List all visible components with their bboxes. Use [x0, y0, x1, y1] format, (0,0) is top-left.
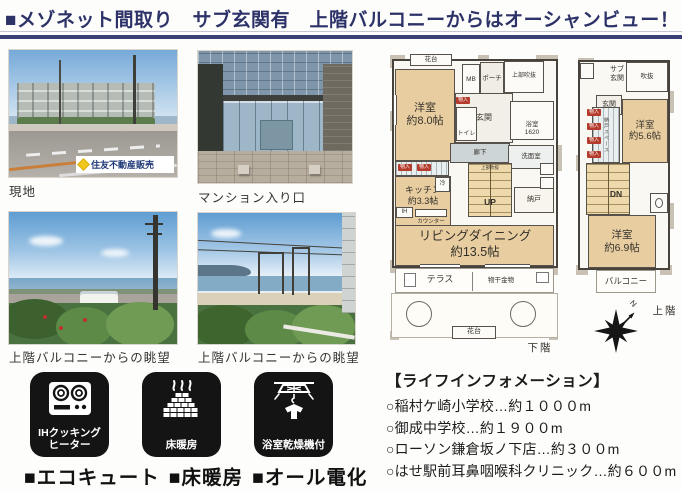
header-rule-thin — [0, 31, 682, 32]
floorplan-lower: 花台 洋室 約8.0帖 MB ポーチ 上部吹抜 玄関 物入 トイレ 浴室 162… — [390, 55, 562, 355]
living-label: リビングダイニング 約13.5帖 — [402, 229, 548, 260]
ih-stove: IH — [396, 207, 413, 218]
photo-site: 住友不動産販売 — [8, 49, 178, 178]
photo-balcony-view-2 — [197, 212, 356, 345]
stone-block — [238, 165, 249, 174]
fixture — [536, 272, 549, 283]
balcony: バルコニー — [596, 270, 656, 293]
room-bedroom56: 洋室 約5.6帖 — [622, 99, 668, 163]
room-void: 吹抜 — [626, 62, 668, 92]
laundry-pole-label: 物干金物 — [476, 277, 526, 285]
ih-cooking-icon — [46, 379, 94, 421]
flower — [43, 315, 47, 319]
terrace-divider — [472, 272, 473, 291]
room-hallway: 廊下 — [450, 143, 510, 163]
photo-caption-site: 現地 — [9, 181, 36, 200]
room-porch: ポーチ — [480, 62, 504, 95]
sidewalk — [9, 124, 177, 132]
fixture — [650, 193, 668, 213]
cloud — [29, 236, 63, 246]
room-storage: 納戸 — [514, 187, 554, 213]
life-information-item: ○はせ駅前耳鼻咽喉科クリニック…約６００m — [386, 461, 682, 483]
life-information-item: ○御成中学校…約１９００m — [386, 418, 682, 440]
feature-ih-cooking: IHクッキング ヒーター — [30, 372, 109, 457]
room-hanadai-top: 花台 — [410, 54, 452, 66]
stone-wall-right — [323, 64, 352, 151]
closet-space-label: 納戸スペース — [603, 117, 609, 153]
closet-tag: 物入 — [587, 137, 601, 144]
cloud — [211, 229, 241, 238]
closet-tag: 物入 — [587, 109, 601, 116]
feature-floor-heating: 床暖房 — [142, 372, 221, 457]
window — [393, 95, 397, 125]
room-mb: MB — [462, 64, 480, 95]
planter-circle — [406, 301, 432, 327]
agency-watermark-text: 住友不動産販売 — [91, 158, 154, 171]
terrace-area — [395, 268, 554, 293]
kitchen-counter — [415, 209, 447, 217]
agency-diamond-icon — [77, 158, 90, 171]
room-toilet: トイレ — [456, 107, 477, 141]
photo-caption-view1: 上階バルコニーからの眺望 — [9, 347, 171, 366]
flower — [59, 326, 63, 330]
meter-box — [580, 63, 594, 79]
photo-caption-view2: 上階バルコニーからの眺望 — [198, 347, 360, 366]
stairs-up — [468, 163, 512, 217]
room-bath: 浴室 1620 — [510, 101, 554, 140]
closet-tag: 物入 — [456, 97, 470, 104]
feature-label: 床暖房 — [142, 439, 221, 451]
closet-tag: 物入 — [417, 164, 431, 171]
life-information: 【ライフインフォメーション】 ○稲村ケ崎小学校…約１０００m ○御成中学校…約１… — [386, 369, 682, 482]
equipment-item: ■床暖房 — [169, 467, 243, 489]
fixture — [540, 163, 554, 175]
equipment-item: ■オール電化 — [252, 467, 367, 489]
lower-floor-label: 下階 — [520, 342, 560, 355]
entrance-door — [260, 120, 294, 150]
flyer-page: ■メゾネット間取り サブ玄関有 上階バルコニーからはオーシャンビュー！ 住友不動… — [0, 0, 682, 491]
upper-floor-label: 上階 — [650, 305, 680, 318]
utility-pole — [153, 215, 158, 310]
planter-circle — [510, 301, 536, 327]
beach — [198, 293, 355, 305]
room-bedroom8: 洋室 約8.0帖 — [395, 69, 455, 161]
feature-bathroom-dryer: 浴室乾燥機付 — [254, 372, 333, 457]
header-rule-navy — [0, 35, 682, 39]
compass-icon — [590, 305, 642, 357]
stairs-dn-label: DN — [600, 189, 632, 200]
photo-caption-entrance: マンション入り口 — [198, 187, 306, 206]
closet-tag: 物入 — [398, 164, 412, 171]
stairs-note: 上部吹抜 — [470, 165, 510, 171]
canopy — [210, 95, 339, 102]
page-title: ■メゾネット間取り サブ玄関有 上階バルコニーからはオーシャンビュー！ — [5, 5, 679, 32]
fixture — [540, 177, 554, 189]
stone-wall-left — [198, 64, 223, 151]
closet-tag: 物入 — [587, 123, 601, 130]
catenary-pole — [292, 247, 310, 295]
stairs-up-label: UP — [474, 197, 506, 208]
stairs-center-line — [490, 164, 491, 216]
life-information-item: ○ローソン鎌倉坂ノ下店…約３００m — [386, 439, 682, 461]
flower — [83, 318, 87, 322]
pole-crossarm — [147, 233, 162, 235]
utility-pole — [59, 60, 61, 124]
fixture-bowl — [655, 198, 663, 208]
terrace-label: テラス — [420, 274, 460, 285]
agency-watermark: 住友不動産販売 — [76, 156, 174, 173]
life-information-title: 【ライフインフォメーション】 — [386, 369, 682, 391]
life-information-item: ○稲村ケ崎小学校…約１０００m — [386, 396, 682, 418]
catenary-pole — [258, 252, 284, 294]
feature-label: 浴室乾燥機付 — [254, 439, 333, 451]
closet-tag: 物入 — [587, 151, 601, 158]
floor-heating-icon — [158, 379, 206, 425]
pavement — [198, 151, 352, 183]
equipment-line: ■エコキュート■床暖房■オール電化 — [24, 461, 376, 490]
bathroom-dryer-icon — [270, 379, 318, 425]
room-bedroom69: 洋室 約6.9帖 — [588, 215, 656, 268]
photo-entrance — [197, 50, 353, 184]
building-edge — [342, 213, 355, 313]
equipment-item: ■エコキュート — [24, 467, 160, 489]
photo-balcony-view-1 — [8, 211, 178, 345]
utility-pole — [133, 55, 136, 126]
room-upper-void: 上部吹抜 — [504, 61, 544, 93]
feature-label: IHクッキング ヒーター — [30, 427, 109, 451]
pole-crossarm — [145, 223, 163, 225]
room-hanadai-bottom: 花台 — [452, 326, 496, 339]
feature-icons: IHクッキング ヒーター 床暖房 — [30, 372, 333, 457]
ac-unit — [404, 273, 416, 287]
fridge: 冷 — [435, 177, 450, 192]
bush — [56, 307, 113, 345]
bush — [106, 302, 173, 345]
floorplan-upper: サブ 玄関 吹抜 玄関 洋室 約5.6帖 納戸スペース 物入 物入 物入 物入 … — [576, 55, 682, 355]
stone-block — [309, 165, 320, 174]
